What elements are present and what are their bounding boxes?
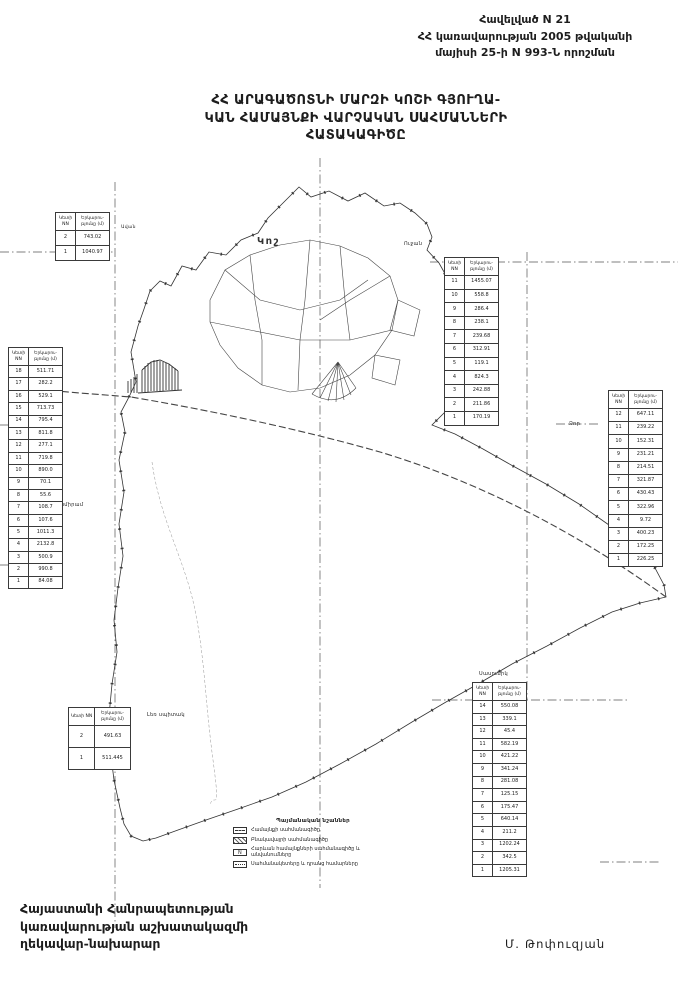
table-header-cell: Կետի NN <box>69 708 95 726</box>
table-cell: 11 <box>445 276 465 290</box>
table-cell: 4 <box>445 371 465 385</box>
table-cell: 719.8 <box>29 453 63 465</box>
table-cell: 890.0 <box>29 465 63 477</box>
table-cell: 7 <box>9 502 29 514</box>
legend-swatch-marker-icon <box>233 849 247 856</box>
community-boundary <box>109 187 666 841</box>
table-cell: 282.2 <box>29 378 63 390</box>
table-cell: 9 <box>609 449 629 462</box>
table-cell: 152.31 <box>629 435 663 448</box>
coordinate-table-left: Կետի NNԵրկարու- թյունը (մ)18511.7117282.… <box>8 347 63 589</box>
table-cell: 3 <box>445 385 465 399</box>
legend-item-label: Բնակավայրի սահմանագիծը <box>251 838 328 844</box>
table-cell: 990.8 <box>29 564 63 576</box>
table-cell: 6 <box>9 515 29 527</box>
table-header-cell: Երկարու- թյունը (մ) <box>95 708 131 726</box>
table-cell: 795.4 <box>29 416 63 428</box>
table-cell: 214.51 <box>629 462 663 475</box>
table-caption-bottom-left: Լեռ սպիտակ <box>147 712 185 718</box>
stream-line <box>152 462 217 805</box>
appendix-header: Հավելված N 21 ՀՀ կառավարության 2005 թվակ… <box>378 12 672 62</box>
table-cell: 743.02 <box>76 231 110 246</box>
title-line-1: ՀՀ ԱՐԱԳԱԾՈՏՆԻ ՄԱՐԶԻ ԿՈՇԻ ԳՅՈՒՂԱ- <box>180 92 532 110</box>
table-cell: 400.23 <box>629 528 663 541</box>
table-cell: 1 <box>609 554 629 567</box>
legend-title: Պայմանական նշաններ <box>241 818 385 824</box>
table-cell: 647.11 <box>629 409 663 422</box>
table-cell: 9.72 <box>629 515 663 528</box>
table-cell: 824.3 <box>465 371 499 385</box>
appendix-number: Հավելված N 21 <box>378 12 672 29</box>
page-title: ՀՀ ԱՐԱԳԱԾՈՏՆԻ ՄԱՐԶԻ ԿՈՇԻ ԳՅՈՒՂԱ- ԿԱՆ ՀԱՄ… <box>180 92 532 145</box>
table-cell: 811.8 <box>29 428 63 440</box>
table-cell: 1 <box>69 748 95 770</box>
table-cell: 491.63 <box>95 726 131 748</box>
table-cell: 286.4 <box>465 303 499 317</box>
table-cell: 1 <box>56 246 76 261</box>
table-header-cell: Կետի NN <box>9 348 29 366</box>
table-cell: 6 <box>609 488 629 501</box>
legend-item: Սահմանակետերը և դրանց համարները <box>233 861 385 868</box>
table-cell: 713.73 <box>29 403 63 415</box>
table-cell: 511.71 <box>29 366 63 378</box>
table-cell: 239.68 <box>465 330 499 344</box>
table-cell: 321.87 <box>629 475 663 488</box>
table-header-cell: Կետի NN <box>56 213 76 231</box>
table-cell: 4 <box>609 515 629 528</box>
table-cell: 7 <box>473 789 493 802</box>
table-cell: 2 <box>56 231 76 246</box>
title-line-3: ՀԱՏԱԿԱԳԻԾԸ <box>180 127 532 145</box>
table-cell: 7 <box>609 475 629 488</box>
table-cell: 312.91 <box>465 344 499 358</box>
legend-item-label: Հարևան համայնքների սահմանագիծը և անվանու… <box>251 847 385 858</box>
table-cell: 640.14 <box>493 814 527 827</box>
legend-item: Բնակավայրի սահմանագիծը <box>233 837 385 844</box>
table-cell: 125.15 <box>493 789 527 802</box>
table-cell: 582.19 <box>493 739 527 752</box>
decree-date-number: մայիսի 25-ի N 993-Ն որոշման <box>378 45 672 62</box>
table-cell: 341.24 <box>493 764 527 777</box>
table-cell: 430.43 <box>629 488 663 501</box>
table-cell: 8 <box>445 317 465 331</box>
table-cell: 2 <box>473 852 493 865</box>
table-cell: 5 <box>609 501 629 514</box>
table-cell: 55.6 <box>29 490 63 502</box>
table-cell: 1011.3 <box>29 527 63 539</box>
scanned-document-page: { "header": { "line1": "Հավելված N 21", … <box>0 0 678 983</box>
table-cell: 14 <box>473 701 493 714</box>
table-cell: 9 <box>473 764 493 777</box>
table-cell: 45.4 <box>493 726 527 739</box>
table-cell: 172.25 <box>629 541 663 554</box>
legend-item: Համայնքի սահմանագիծը <box>233 827 385 834</box>
table-cell: 6 <box>445 344 465 358</box>
table-cell: 70.1 <box>29 478 63 490</box>
table-cell: 1 <box>9 577 29 589</box>
coordinate-table-bottom-left: Կետի NNԵրկարու- թյունը (մ)2491.631511.44… <box>68 707 131 770</box>
coordinate-table-bottom-right: Կետի NNԵրկարու- թյունը (մ)14550.0813339.… <box>472 682 527 877</box>
table-cell: 231.21 <box>629 449 663 462</box>
boundary-point-marks <box>109 187 666 841</box>
table-cell: 16 <box>9 391 29 403</box>
table-cell: 11 <box>609 422 629 435</box>
table-header-cell: Կետի NN <box>473 683 493 701</box>
table-header-cell: Կետի NN <box>445 258 465 276</box>
table-cell: 13 <box>473 714 493 727</box>
signatory-line-3: ղեկավար-նախարար <box>20 935 248 953</box>
table-cell: 2 <box>445 398 465 412</box>
table-cell: 342.5 <box>493 852 527 865</box>
table-header-cell: Երկարու- թյունը (մ) <box>493 683 527 701</box>
table-cell: 2132.8 <box>29 539 63 551</box>
table-cell: 211.2 <box>493 827 527 840</box>
table-cell: 15 <box>9 403 29 415</box>
table-cell: 107.6 <box>29 515 63 527</box>
legend-swatch-hatch-icon <box>233 837 247 844</box>
table-cell: 339.1 <box>493 714 527 727</box>
table-cell: 10 <box>609 435 629 448</box>
table-cell: 1455.07 <box>465 276 499 290</box>
table-cell: 511.445 <box>95 748 131 770</box>
table-cell: 12 <box>473 726 493 739</box>
table-cell: 7 <box>445 330 465 344</box>
table-cell: 11 <box>9 453 29 465</box>
table-cell: 1 <box>445 412 465 426</box>
signatory-line-2: կառավարության աշխատակազմի <box>20 918 248 936</box>
table-cell: 1040.97 <box>76 246 110 261</box>
table-cell: 119.1 <box>465 358 499 372</box>
table-cell: 529.1 <box>29 391 63 403</box>
table-cell: 5 <box>9 527 29 539</box>
legend-items: Համայնքի սահմանագիծըԲնակավայրի սահմանագի… <box>233 827 385 868</box>
legend-item: Հարևան համայնքների սահմանագիծը և անվանու… <box>233 847 385 858</box>
table-cell: 10 <box>9 465 29 477</box>
table-cell: 550.08 <box>493 701 527 714</box>
table-cell: 421.22 <box>493 751 527 764</box>
road-line <box>22 388 666 597</box>
table-cell: 226.25 <box>629 554 663 567</box>
table-cell: 1 <box>473 865 493 878</box>
table-cell: 10 <box>445 290 465 304</box>
table-cell: 175.47 <box>493 802 527 815</box>
signature-name: Մ. Թոփուզյան <box>505 937 605 951</box>
table-cell: 2 <box>69 726 95 748</box>
table-cell: 3 <box>9 552 29 564</box>
table-caption-bottom-right: Սասունիկ <box>479 671 508 677</box>
table-cell: 13 <box>9 428 29 440</box>
legend-swatch-dots-icon <box>233 861 247 868</box>
map-label-neighbor-nw: Ավան <box>121 225 136 230</box>
table-header-cell: Երկարու- թյունը (մ) <box>29 348 63 366</box>
grid-lines <box>0 158 678 928</box>
legend-item-label: Սահմանակետերը և դրանց համարները <box>251 862 358 868</box>
table-cell: 10 <box>473 751 493 764</box>
table-cell: 170.19 <box>465 412 499 426</box>
map-label-neighbor-east: Ձոր <box>569 421 580 427</box>
table-cell: 17 <box>9 378 29 390</box>
map-label-neighbor-ne: Ուջան <box>404 241 422 247</box>
table-cell: 322.96 <box>629 501 663 514</box>
table-cell: 8 <box>473 777 493 790</box>
table-cell: 8 <box>609 462 629 475</box>
table-cell: 2 <box>609 541 629 554</box>
table-cell: 5 <box>445 358 465 372</box>
table-header-cell: Կետի NN <box>609 391 629 409</box>
table-cell: 500.9 <box>29 552 63 564</box>
table-cell: 6 <box>473 802 493 815</box>
table-cell: 1202.24 <box>493 840 527 853</box>
table-cell: 277.1 <box>29 440 63 452</box>
table-cell: 238.1 <box>465 317 499 331</box>
settlement-parcels <box>210 240 420 402</box>
table-cell: 2 <box>9 564 29 576</box>
table-cell: 3 <box>473 840 493 853</box>
table-cell: 5 <box>473 814 493 827</box>
table-cell: 1205.31 <box>493 865 527 878</box>
coordinate-table-right-top: Կետի NNԵրկարու- թյունը (մ)111455.0710558… <box>444 257 499 426</box>
table-cell: 14 <box>9 416 29 428</box>
table-cell: 211.86 <box>465 398 499 412</box>
coordinate-table-top-left: Կետի NNԵրկարու- թյունը (մ)2743.0211040.9… <box>55 212 110 261</box>
table-cell: 4 <box>9 539 29 551</box>
table-cell: 18 <box>9 366 29 378</box>
table-header-cell: Երկարու- թյունը (մ) <box>465 258 499 276</box>
table-cell: 239.22 <box>629 422 663 435</box>
table-cell: 11 <box>473 739 493 752</box>
table-cell: 12 <box>609 409 629 422</box>
government-decree-line: ՀՀ կառավարության 2005 թվականի <box>378 29 672 46</box>
table-cell: 84.08 <box>29 577 63 589</box>
table-cell: 242.88 <box>465 385 499 399</box>
signatory-title-block: Հայաստանի Հանրապետության կառավարության ա… <box>20 900 248 953</box>
table-cell: 9 <box>445 303 465 317</box>
legend-item-label: Համայնքի սահմանագիծը <box>251 828 320 834</box>
signatory-line-1: Հայաստանի Հանրապետության <box>20 900 248 918</box>
table-header-cell: Երկարու- թյունը (մ) <box>629 391 663 409</box>
table-header-cell: Երկարու- թյունը (մ) <box>76 213 110 231</box>
table-cell: 8 <box>9 490 29 502</box>
table-cell: 108.7 <box>29 502 63 514</box>
map-label-kosh: Կոշ <box>257 236 280 247</box>
table-cell: 558.8 <box>465 290 499 304</box>
hatched-parcel-strip <box>128 360 182 393</box>
table-cell: 9 <box>9 478 29 490</box>
title-line-2: ԿԱՆ ՀԱՄԱՅՆՔԻ ՎԱՐՉԱԿԱՆ ՍԱՀՄԱՆՆԵՐԻ <box>180 110 532 128</box>
map-legend: Պայմանական նշաններ Համայնքի սահմանագիծըԲ… <box>233 818 385 871</box>
table-cell: 4 <box>473 827 493 840</box>
coordinate-table-right-middle: Կետի NNԵրկարու- թյունը (մ)12647.1111239.… <box>608 390 663 567</box>
table-cell: 12 <box>9 440 29 452</box>
table-cell: 281.08 <box>493 777 527 790</box>
legend-swatch-dashline-icon <box>233 827 247 834</box>
table-cell: 3 <box>609 528 629 541</box>
